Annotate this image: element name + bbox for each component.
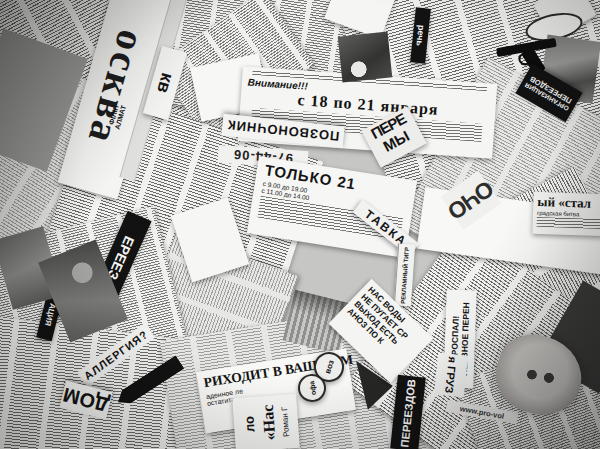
photo-clipping	[338, 32, 393, 83]
reklama-text: РЕКЛАМНЫЙ ТИГР	[400, 247, 410, 304]
ya-gruz-fragment: я ГРУЗ	[434, 353, 468, 398]
roman-text: Роман Г	[280, 406, 291, 437]
newspaper-collage-photo: осква кв ФІЛІП АЛМАТ Внимание!!! с 18 по…	[0, 0, 600, 449]
lo-text: ло	[241, 416, 257, 433]
voz-text: воз	[323, 359, 336, 375]
nas-quote-text: «Нас	[259, 404, 279, 441]
rech-text: речь	[414, 25, 426, 47]
stal-fragment: ый «стал градская битва	[532, 192, 600, 236]
ya-gruz-text: я ГРУЗ	[443, 356, 459, 394]
ofa-text: офа	[308, 380, 317, 395]
text-line-stub	[537, 217, 600, 229]
pereezdov-text: ПЕРЕЕЗДОВ	[398, 378, 417, 447]
kv-text: кв	[152, 70, 178, 95]
roman-fragment: ло «Нас Роман Г	[232, 394, 300, 449]
